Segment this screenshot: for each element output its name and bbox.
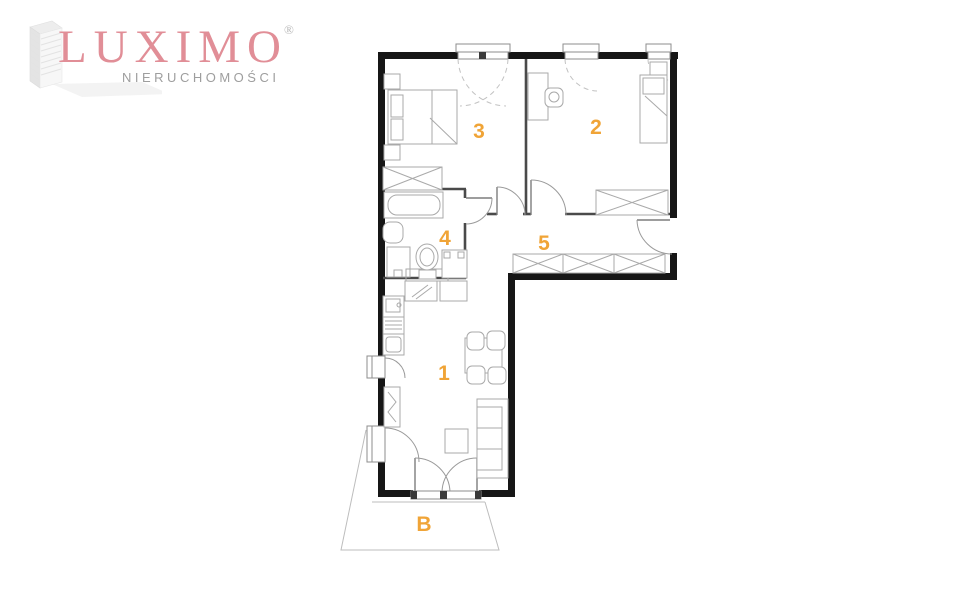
kitchen-units bbox=[383, 281, 467, 355]
nightstand bbox=[650, 62, 667, 75]
door-bedroom-right bbox=[531, 180, 566, 215]
bathroom-fixtures bbox=[383, 192, 467, 281]
chair bbox=[487, 331, 505, 350]
sofa bbox=[477, 399, 508, 478]
cabinet bbox=[387, 247, 410, 277]
nightstand bbox=[384, 145, 400, 160]
room-label-living: 1 bbox=[438, 362, 450, 385]
washing-machine bbox=[442, 250, 467, 278]
entrance-door bbox=[637, 220, 672, 254]
dishwasher bbox=[405, 281, 437, 301]
door-bedroom-left bbox=[497, 187, 525, 215]
pillow bbox=[643, 78, 664, 94]
door-bathroom bbox=[466, 198, 492, 224]
balcony-label: B bbox=[416, 513, 431, 536]
pillow bbox=[391, 119, 403, 140]
counter bbox=[440, 281, 467, 301]
chair bbox=[488, 367, 506, 384]
hallway-wardrobes bbox=[513, 254, 665, 273]
nightstand bbox=[384, 74, 400, 89]
sink bbox=[383, 222, 403, 243]
desk-chair bbox=[545, 88, 563, 107]
window-mullion bbox=[479, 52, 486, 59]
balcony-door bbox=[411, 458, 481, 499]
floor-plan-page: LUXIMO® NIERUCHOMOŚCI bbox=[0, 0, 980, 601]
pillow bbox=[391, 95, 403, 117]
bedroom-left-furniture bbox=[383, 74, 457, 190]
room-label-bedroom-left: 3 bbox=[473, 120, 485, 143]
room-label-bedroom-right: 2 bbox=[590, 116, 602, 139]
coffee-table bbox=[445, 429, 468, 453]
floor-plan-drawing: 1 2 3 4 5 B bbox=[0, 0, 980, 601]
chair bbox=[467, 366, 485, 384]
room-label-hallway: 5 bbox=[538, 232, 550, 255]
chair bbox=[467, 332, 484, 350]
room-label-bathroom: 4 bbox=[439, 227, 451, 250]
